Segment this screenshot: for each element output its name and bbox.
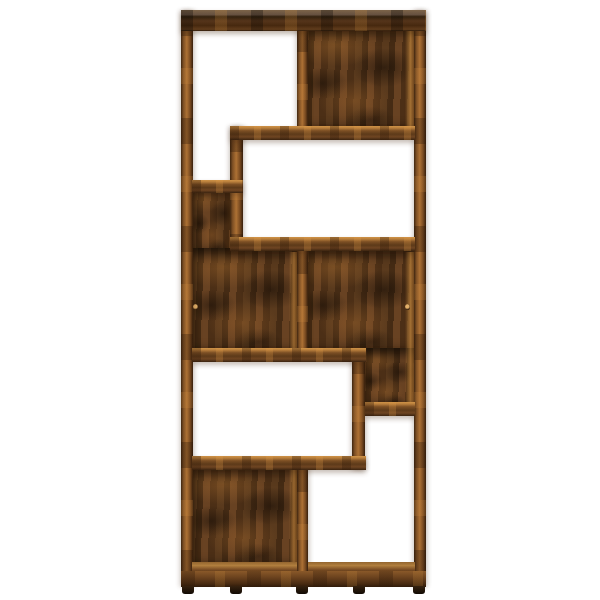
cam-lock-dot-left bbox=[193, 304, 198, 310]
bookshelf-product-photo bbox=[0, 0, 600, 600]
shelf-mid-left bbox=[192, 348, 366, 362]
shelf-mid-upper bbox=[230, 237, 415, 251]
side-post-right bbox=[414, 10, 426, 587]
foot-left bbox=[230, 586, 242, 594]
foot-far-left bbox=[182, 586, 194, 594]
divider-top bbox=[297, 26, 308, 129]
shelf-under-top-right bbox=[230, 126, 415, 140]
shelf-right-nook-bottom bbox=[365, 402, 415, 416]
back-panel-bottom-left bbox=[191, 466, 303, 566]
divider-bottom bbox=[297, 466, 308, 572]
shelf-top-left-bottom bbox=[192, 180, 243, 193]
side-post-left bbox=[181, 10, 193, 587]
back-panel-mid-left bbox=[191, 248, 303, 352]
bottom-plinth bbox=[181, 571, 426, 587]
inner-post-lower bbox=[352, 348, 365, 470]
top-board bbox=[181, 10, 426, 31]
cam-lock-dot-right bbox=[405, 304, 410, 310]
divider-mid bbox=[297, 248, 308, 352]
foot-center bbox=[296, 586, 308, 594]
foot-right bbox=[353, 586, 365, 594]
foot-far-right bbox=[413, 586, 425, 594]
back-panel-top-right bbox=[302, 26, 416, 130]
back-panel-mid-right bbox=[302, 248, 416, 352]
shelf-lower bbox=[192, 456, 366, 470]
